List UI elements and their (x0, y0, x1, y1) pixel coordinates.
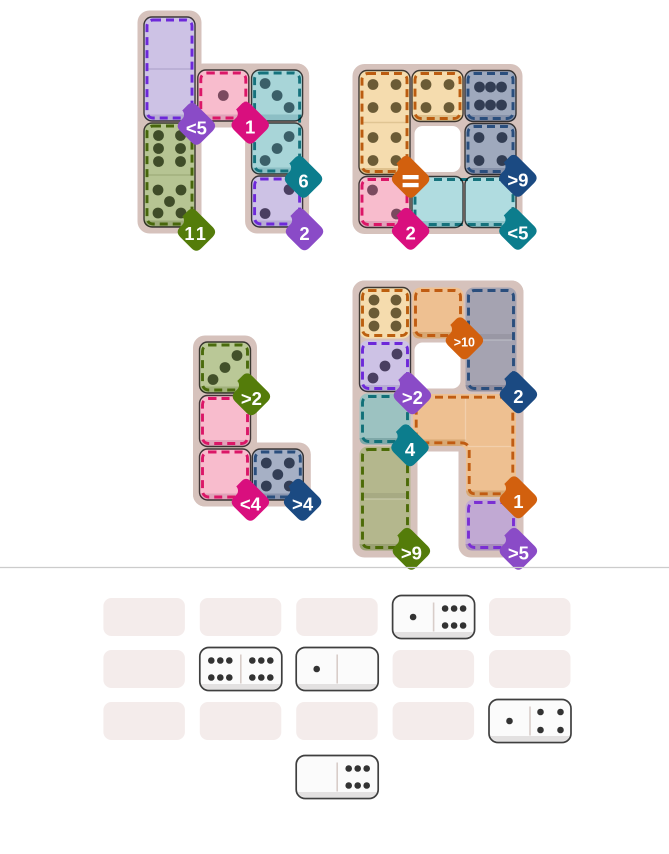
svg-text:<5: <5 (507, 223, 528, 244)
svg-text:6: 6 (298, 171, 308, 192)
svg-text:1: 1 (513, 491, 523, 512)
svg-text:>4: >4 (292, 494, 314, 515)
svg-text:11: 11 (184, 224, 208, 244)
svg-text:2: 2 (405, 223, 415, 244)
svg-text:2: 2 (513, 386, 523, 407)
svg-text:>5: >5 (508, 543, 529, 564)
svg-text:>10: >10 (454, 336, 475, 350)
svg-text:>9: >9 (401, 543, 422, 564)
svg-text:>9: >9 (507, 170, 528, 191)
svg-text:<4: <4 (240, 494, 262, 515)
svg-text:>2: >2 (241, 388, 262, 409)
svg-text:4: 4 (405, 439, 416, 460)
svg-text:2: 2 (299, 223, 309, 244)
svg-text:1: 1 (245, 117, 255, 138)
svg-text:<5: <5 (186, 118, 207, 139)
svg-text:>2: >2 (402, 387, 423, 408)
